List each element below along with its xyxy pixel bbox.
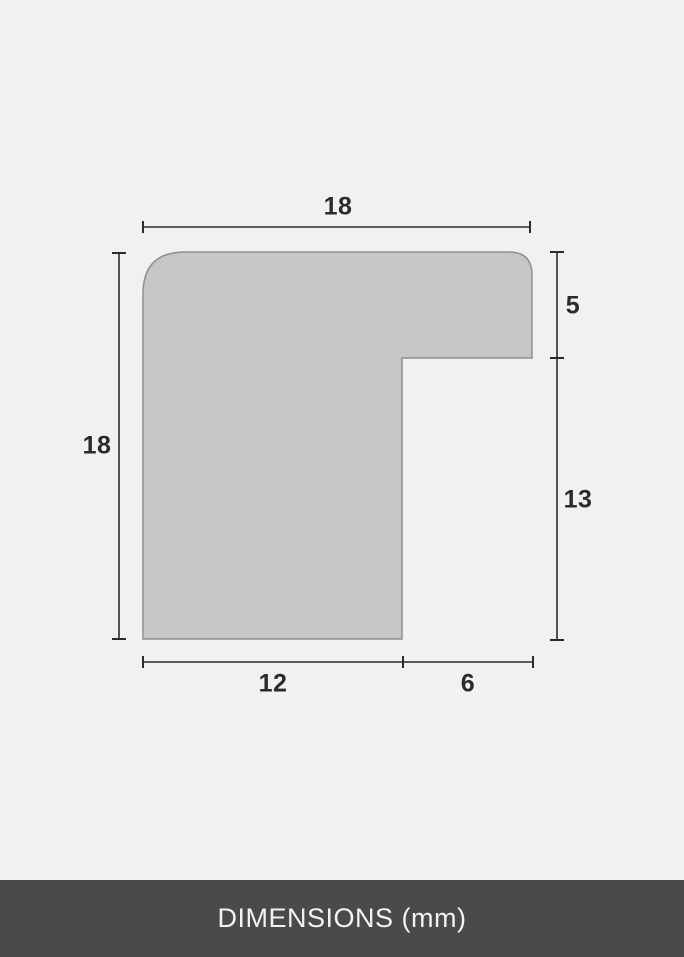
dimension-label-left-height: 18 <box>83 432 112 461</box>
dimension-label-right-bottom: 13 <box>564 486 593 515</box>
diagram-stage: 18 18 5 13 12 6 <box>0 0 684 880</box>
footer-title: DIMENSIONS (mm) <box>218 903 467 934</box>
top-dimension-line <box>143 221 530 233</box>
left-dimension-line <box>112 253 126 639</box>
dimension-label-bottom-right: 6 <box>461 670 475 699</box>
dimension-label-right-top: 5 <box>566 292 580 321</box>
bottom-dimension-line <box>143 656 533 668</box>
right-dimension-line <box>550 252 564 640</box>
dimension-label-bottom-left: 12 <box>259 670 288 699</box>
frame-profile-shape <box>143 252 532 639</box>
dimension-label-top-width: 18 <box>324 193 353 222</box>
footer-bar: DIMENSIONS (mm) <box>0 880 684 957</box>
